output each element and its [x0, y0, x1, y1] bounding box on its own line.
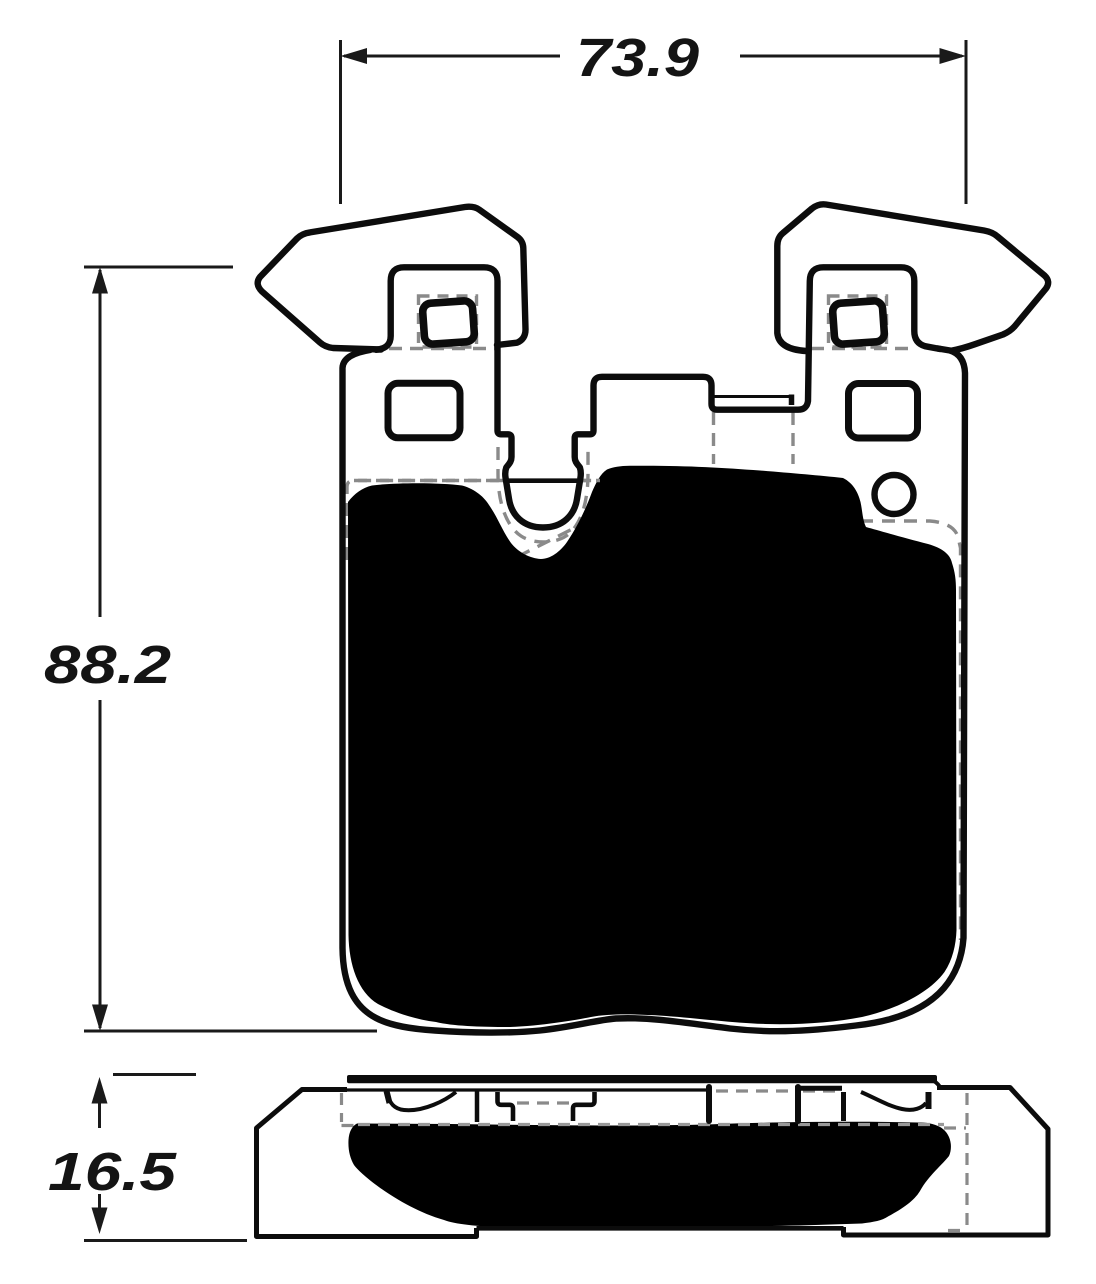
- svg-text:16.5: 16.5: [48, 1142, 177, 1202]
- svg-text:73.9: 73.9: [576, 28, 699, 88]
- svg-text:88.2: 88.2: [44, 635, 171, 695]
